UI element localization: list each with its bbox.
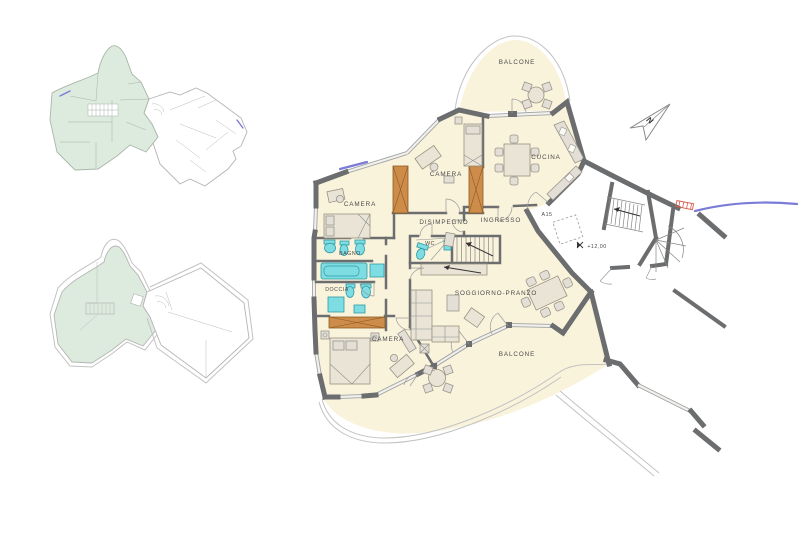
coffee-table xyxy=(447,295,459,311)
bathtub xyxy=(321,263,367,279)
key-plan-other-unit xyxy=(144,88,247,186)
key-plan-floor-overview xyxy=(50,46,247,186)
kitchen-table xyxy=(504,144,530,176)
key-plan-roof-overview xyxy=(50,239,253,383)
roof-other-unit xyxy=(143,268,249,378)
main-plan: BALCONE CUCINA CAMERA CAMERA DISIMPEGNO … xyxy=(314,0,797,476)
neighbor-walls xyxy=(606,215,724,449)
label-doccia: DOCCIA xyxy=(325,287,349,293)
label-camera-left: CAMERA xyxy=(344,201,376,208)
label-apartment-code: A15 xyxy=(542,212,553,218)
sofa-vertical xyxy=(411,290,432,340)
label-wc: WC xyxy=(425,241,435,247)
shower xyxy=(328,297,344,312)
understair-cabinet xyxy=(421,264,487,275)
label-ingresso: INGRESSO xyxy=(481,217,521,224)
label-elevation: +12,00 xyxy=(587,244,606,250)
label-soggiorno: SOGGIORNO-PRANZO xyxy=(455,290,537,297)
label-camera-bottom: CAMERA xyxy=(372,336,404,343)
terrace-edge-continuation xyxy=(556,391,659,476)
label-camera-top: CAMERA xyxy=(430,171,462,178)
north-arrow-icon: N xyxy=(630,104,670,140)
sofa-horizontal xyxy=(432,326,459,342)
floorplan-sheet: BALCONE CUCINA CAMERA CAMERA DISIMPEGNO … xyxy=(0,0,800,547)
floorplan-drawing: BALCONE CUCINA CAMERA CAMERA DISIMPEGNO … xyxy=(0,0,800,547)
elevator-shaft xyxy=(553,215,583,244)
blue-section-curve xyxy=(695,203,797,211)
label-cucina: CUCINA xyxy=(531,154,561,161)
stair-treads-straight xyxy=(605,197,645,232)
label-bagno: BAGNO xyxy=(339,251,361,257)
label-disimpegno: DISIMPEGNO xyxy=(419,219,468,226)
label-balcone-top: BALCONE xyxy=(499,59,535,66)
label-balcone-bottom: BALCONE xyxy=(499,351,535,358)
balcony-door-mullion xyxy=(508,111,517,117)
